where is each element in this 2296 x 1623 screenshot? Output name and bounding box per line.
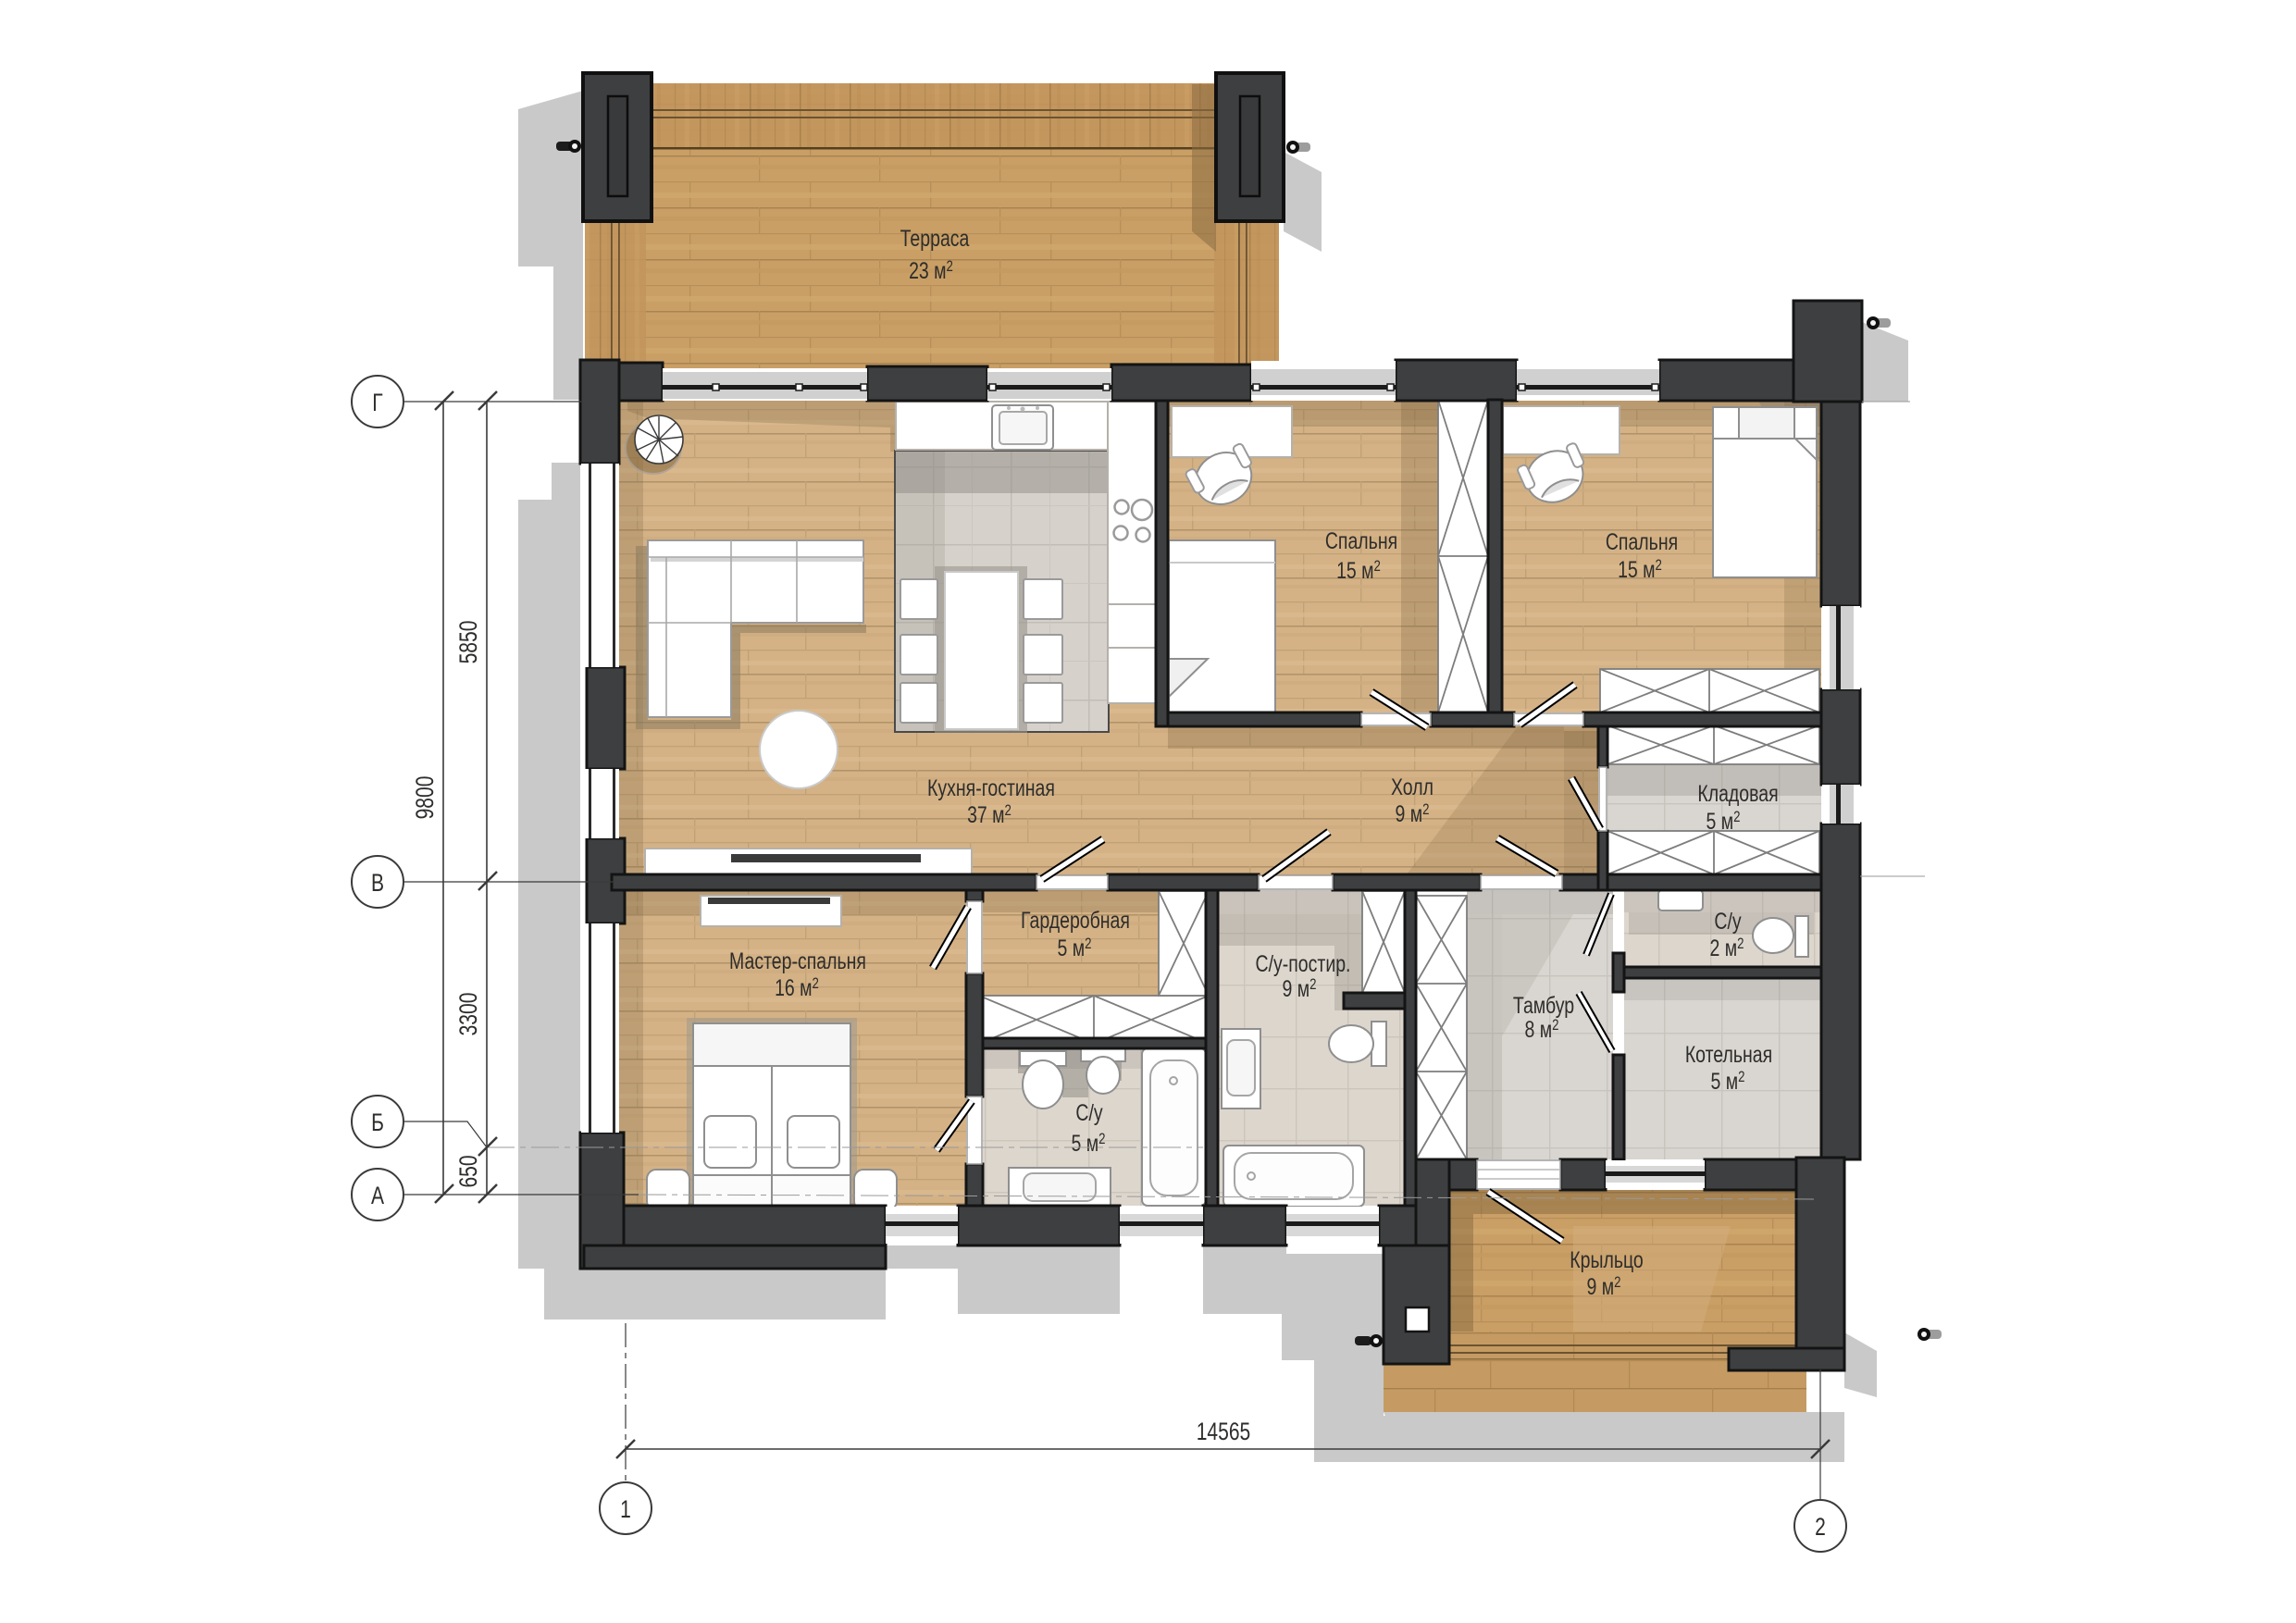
- svg-text:С/у: С/у: [1714, 909, 1742, 935]
- svg-text:Мастер-спальня: Мастер-спальня: [729, 948, 866, 974]
- svg-text:9800: 9800: [412, 776, 440, 820]
- svg-text:В: В: [371, 870, 384, 898]
- svg-text:Спальня: Спальня: [1606, 529, 1678, 555]
- svg-text:С/у-постир.: С/у-постир.: [1256, 951, 1351, 977]
- svg-text:5850: 5850: [455, 621, 483, 664]
- svg-text:Котельная: Котельная: [1685, 1042, 1772, 1068]
- svg-text:Холл: Холл: [1391, 774, 1433, 800]
- svg-text:Кладовая: Кладовая: [1697, 781, 1778, 807]
- svg-text:Крыльцо: Крыльцо: [1570, 1247, 1644, 1273]
- svg-text:1: 1: [620, 1496, 631, 1524]
- svg-text:2: 2: [1815, 1514, 1826, 1542]
- svg-text:Терраса: Терраса: [900, 226, 970, 252]
- svg-text:Тамбур: Тамбур: [1513, 993, 1574, 1019]
- svg-text:Б: Б: [371, 1109, 384, 1137]
- svg-text:Кухня-гостиная: Кухня-гостиная: [927, 775, 1055, 801]
- svg-text:С/у: С/у: [1075, 1100, 1103, 1126]
- svg-text:А: А: [371, 1183, 385, 1210]
- svg-text:Г: Г: [372, 390, 382, 417]
- svg-text:3300: 3300: [455, 993, 483, 1036]
- svg-text:14565: 14565: [1197, 1419, 1251, 1446]
- svg-text:Гардеробная: Гардеробная: [1021, 908, 1130, 934]
- svg-text:Спальня: Спальня: [1325, 528, 1397, 554]
- svg-text:650: 650: [455, 1155, 483, 1187]
